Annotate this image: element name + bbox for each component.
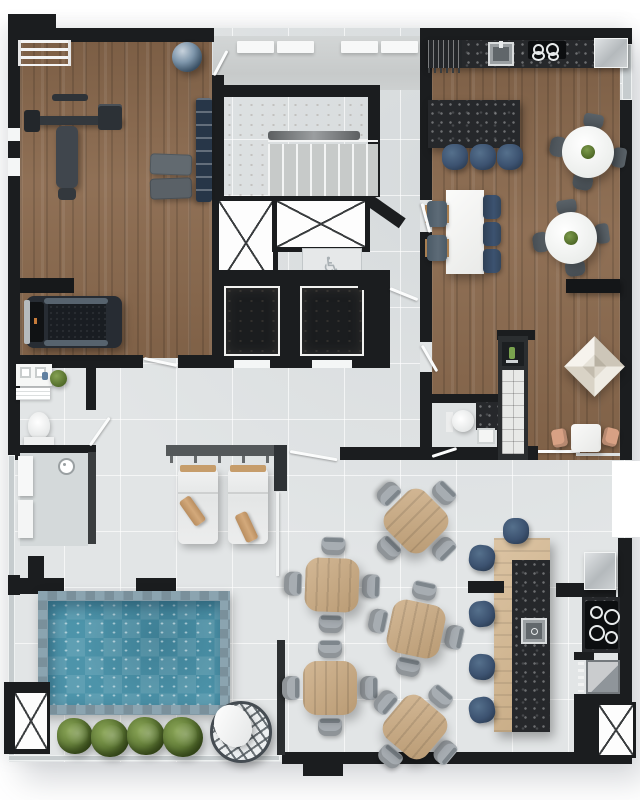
window-gap: [8, 128, 20, 141]
sliding-door: [576, 453, 620, 456]
plant: [57, 718, 93, 754]
wall-segment: [8, 14, 56, 28]
shower-cabinet: [18, 456, 33, 496]
wall-bars: [18, 40, 71, 66]
kitchen-island: [428, 100, 520, 148]
roof-plank: [341, 41, 378, 53]
wall-segment: [86, 358, 96, 410]
slate-chair: [427, 201, 447, 227]
pergola: [166, 445, 280, 456]
dining-chair: [321, 537, 346, 556]
wall-segment: [88, 452, 96, 544]
burner-ring: [532, 51, 545, 61]
roof-plank: [237, 41, 274, 53]
plant: [163, 717, 203, 757]
burner-ring: [604, 609, 620, 625]
dining-chair: [318, 640, 342, 658]
dining-chair: [284, 571, 303, 596]
bar-stool: [503, 518, 529, 544]
wc-sink: [477, 428, 495, 444]
island-stool: [470, 144, 496, 170]
right-notch: [612, 461, 640, 537]
dining-table: [304, 557, 360, 613]
roof-plank: [381, 41, 418, 53]
dining-table-white: [446, 190, 484, 274]
wc-toilet: [452, 410, 474, 432]
shower-cabinet: [18, 500, 33, 538]
bathroom-plant: [50, 370, 67, 387]
elevator-cabin-1: [224, 286, 280, 356]
exercise-ball: [172, 42, 202, 72]
staircase-landing-edge: [268, 140, 378, 142]
grill-knobs: [578, 662, 584, 692]
dining-chair: [360, 676, 378, 700]
navy-chair: [483, 222, 501, 246]
kitchen-utensil-row: [428, 68, 462, 73]
wall-segment: [178, 355, 212, 368]
burner-ring: [605, 631, 618, 644]
x-column: [12, 690, 50, 752]
wall-stub: [574, 652, 594, 660]
staircase-steps: [268, 144, 378, 196]
bar-island-stone-top: [512, 560, 550, 732]
kitchen-faucet: [499, 41, 503, 48]
wall-segment: [340, 447, 428, 460]
shaft-x-2: [272, 196, 370, 252]
navy-chair: [483, 195, 501, 219]
wall-segment: [8, 28, 20, 368]
treadmill-front-cap: [24, 300, 30, 344]
refrigerator: [594, 38, 628, 68]
gym-mat: [150, 177, 193, 199]
elevator-door-2: [312, 360, 352, 368]
gym-shelf: [20, 278, 74, 293]
glass-partition: [276, 492, 279, 576]
toilet-tank: [24, 437, 54, 445]
treadmill-belt: [48, 304, 106, 340]
roof-plank: [277, 41, 314, 53]
weight-machine-crossbar: [52, 94, 88, 101]
console-bench: [566, 279, 620, 293]
wall-segment: [28, 556, 44, 594]
island-stool: [497, 144, 523, 170]
wall-stub: [468, 581, 504, 593]
navy-chair: [483, 249, 501, 273]
wall-segment: [358, 278, 390, 290]
slate-chair: [427, 235, 447, 261]
pergola-post: [274, 445, 287, 491]
towel-stack: [16, 388, 50, 400]
elevator-cabin-2: [300, 286, 364, 356]
bottle: [509, 347, 515, 359]
terrace-table: [571, 424, 601, 452]
gym-mat: [150, 153, 193, 175]
staircase-handrail: [268, 131, 360, 140]
vanity-sink: [20, 367, 31, 378]
dining-chair: [318, 615, 343, 634]
burner-ring: [590, 606, 603, 619]
island-stool: [442, 144, 468, 170]
elevator-door-1: [234, 360, 270, 368]
wall-segment: [303, 762, 343, 776]
wc-counter: [476, 402, 498, 430]
bar-glass: [506, 360, 518, 363]
grill: [586, 660, 620, 694]
treadmill-led: [34, 318, 37, 324]
x-column: [596, 702, 636, 758]
toilet: [28, 412, 50, 439]
shower-drain-dot: [63, 463, 66, 466]
pool-water: [48, 601, 220, 705]
floor-plan: ♿: [0, 0, 640, 800]
outdoor-fridge: [584, 552, 616, 590]
terrace-chair: [551, 428, 569, 448]
dumbbell-rack: [196, 98, 212, 202]
kitchen-sink-basin: [493, 47, 509, 61]
dining-chair: [362, 574, 381, 599]
plant: [91, 719, 129, 757]
weight-machine-stack-right: [98, 104, 122, 130]
dining-chair: [318, 718, 342, 736]
egg-chair: [210, 701, 272, 763]
shower-drain: [58, 458, 75, 475]
weight-machine-seat: [58, 188, 76, 200]
burner-ring: [589, 625, 605, 641]
dining-chair: [282, 676, 300, 700]
dining-table: [303, 661, 357, 715]
plant: [127, 717, 165, 755]
storage-shelves: [502, 370, 524, 454]
weight-machine-stack-left: [24, 110, 40, 132]
bar-faucet: [531, 628, 538, 635]
soap-item: [42, 372, 48, 380]
wall-segment: [8, 445, 96, 453]
weight-machine-bench: [56, 126, 78, 188]
burner-ring: [548, 52, 559, 61]
treadmill-rail: [44, 340, 108, 346]
kitchen-shelf-unit: [428, 40, 462, 68]
wall-segment: [213, 85, 378, 97]
window-gap: [8, 158, 20, 176]
